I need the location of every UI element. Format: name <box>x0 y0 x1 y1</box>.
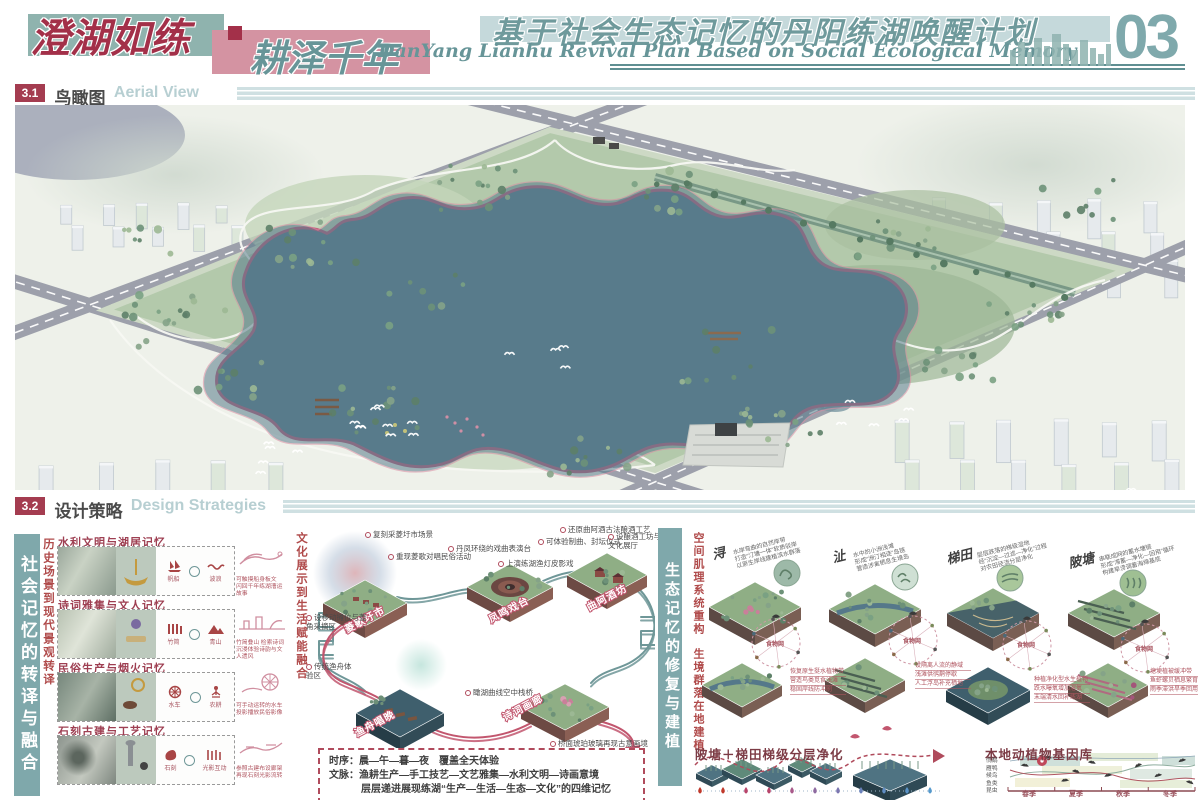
annotation: 复刻采菱圩市场景 <box>365 531 460 540</box>
memory-panel-folk: 水车 农耕 <box>57 672 235 722</box>
dragon-boat-sketch-icon <box>236 546 288 572</box>
purification-heading: 陂塘＋梯田梯级分层净化 <box>695 744 844 763</box>
left-sidebar-label: 社会记忆的转译与融合 <box>14 534 40 796</box>
season-label: 春季 <box>1022 789 1036 799</box>
section-strategy-bar: 3.2 设计策略 Design Strategies <box>15 497 1195 517</box>
design-poster: 澄湖如练 耕泽千年 基于社会生态记忆的丹阳练湖唤醒计划 DanYang Lian… <box>0 0 1200 800</box>
artifact-block <box>116 547 156 595</box>
section-strategy-title-en: Design Strategies <box>131 497 266 514</box>
panel-sketch-zone: 参照古建布设廊架再现石刻光影流转 <box>236 735 288 783</box>
strategy-notes: 设隔离人流的静域浅滩供鸻鹬停歇人工浮岛补充栖地 <box>915 662 971 689</box>
food-web-label: 食物网 <box>766 639 784 648</box>
panel-sketch-zone: 竹简叠山 检索诗词沉浸体验诗韵与文人遗风 <box>236 609 288 657</box>
season-label: 秋季 <box>1116 789 1130 799</box>
south-pavilion <box>715 423 737 436</box>
season-label: 夏季 <box>1069 789 1083 799</box>
link-circle-icon <box>184 755 195 766</box>
timeline-text: 晨—午—暮—夜 覆盖全天体验 <box>359 756 499 767</box>
page-number: 03 <box>1114 2 1177 73</box>
genebank-row-labels: 鸻鹬雁鸭 候鸟鱼类 昆虫 <box>986 758 998 796</box>
title-divider-square <box>228 26 242 40</box>
section-aerial-title-en: Aerial View <box>114 84 199 101</box>
artifact-block <box>116 610 156 658</box>
memory-panel-poetry: 竹简 青山 <box>57 609 235 659</box>
historic-photo <box>58 736 116 784</box>
historic-photo <box>58 673 116 721</box>
timeline-label: 时序： <box>329 756 359 767</box>
section-aerial-rule <box>237 87 1195 100</box>
section-aerial-number: 3.1 <box>15 84 45 102</box>
waterwheel-icon: 水车 <box>167 685 183 709</box>
food-web-label: 食物网 <box>1135 644 1153 653</box>
watercolor-circle-mint <box>395 639 447 691</box>
panel-sketch-zone: 可手动运转的水车投影播放民俗影像 <box>236 672 288 720</box>
section-strategy-title-cn: 设计策略 <box>54 502 122 521</box>
strategy-notes: 塘埂植被缓冲带鱼虾螺贝栖息繁育雨季滞洪旱季回用 <box>1150 668 1198 695</box>
context-text-2: 层层递进展现练湖“生产—生活—生态—文化”的四维记忆 <box>329 783 634 797</box>
header: 澄湖如练 耕泽千年 基于社会生态记忆的丹阳练湖唤醒计划 DanYang Lian… <box>0 0 1200 82</box>
genebank-heading: 本地动植物基因库 <box>985 744 1093 763</box>
header-rule-2 <box>610 68 1185 70</box>
stone-carving-icon: 石刻 <box>163 748 177 772</box>
section-strategy-number: 3.2 <box>15 497 45 515</box>
wave-icon: 波浪 <box>207 559 225 583</box>
poster-title-cn-2: 耕泽千年 <box>250 28 398 82</box>
poster-subtitle-en: DanYang Lianhu Revival Plan Based on Soc… <box>378 40 1076 62</box>
historic-photo <box>58 547 116 595</box>
link-circle-icon <box>189 629 200 640</box>
artifact-block <box>116 736 156 784</box>
annotation: 设移动摊位与菱角采摘区 <box>306 614 368 631</box>
annotation: 上演练湖渔灯皮影戏 <box>498 560 603 569</box>
annotation: 瞰湖曲线空中栈桥 <box>465 689 560 698</box>
historic-photo <box>58 610 116 658</box>
aerial-view-rendering <box>15 105 1185 490</box>
north-pavilion <box>593 137 605 144</box>
city-bridge-sketch-icon <box>236 609 288 635</box>
artifact-block <box>116 673 156 721</box>
strategy-notes: 种植净化型水生植物跌水曝氧增加溶氧末端清水回补练湖 <box>1034 676 1090 703</box>
light-show-icon: 光影互动 <box>202 748 226 772</box>
axis-history-label: 历史场景到现代景观转译 <box>40 538 56 788</box>
context-text: 渔耕生产—手工技艺—文艺雅集—水利文明—诗画意境 <box>359 770 599 781</box>
context-label: 文脉： <box>329 770 359 781</box>
eco-sidebar-label: 生态记忆的修复与建植 <box>658 528 682 786</box>
memory-panel-stone: 石刻 光影互动 <box>57 735 235 785</box>
aerial-view-canvas <box>15 105 1185 490</box>
link-circle-icon <box>190 692 201 703</box>
relic-sketch-icon <box>236 735 288 761</box>
bamboo-scroll-icon: 竹简 <box>166 622 182 646</box>
memory-panel-water: 帆船 波浪 <box>57 546 235 596</box>
city-skyline-icon <box>1008 32 1113 66</box>
strategy-notes: 恢复原生挺水植物带营造鸟类觅食浅滩稳固岸线防冲刷 <box>790 668 846 695</box>
food-web-label: 食物网 <box>1017 640 1035 649</box>
gold-boat-icon <box>124 577 148 586</box>
season-label: 冬季 <box>1163 789 1177 799</box>
link-circle-icon <box>189 566 200 577</box>
panel-sketch-zone: 可触摸船身板文闪回千年练湖漕运故事 <box>236 546 288 594</box>
poster-title-cn-1: 澄湖如练 <box>30 6 190 64</box>
food-web-label: 食物网 <box>903 636 921 645</box>
summary-box: 时序：晨—午—暮—夜 覆盖全天体验 文脉：渔耕生产—手工技艺—文艺雅集—水利文明… <box>318 748 645 800</box>
purification-graphic <box>695 726 945 800</box>
annotation: 传统渔舟体验区 <box>306 663 358 680</box>
mountain-icon: 青山 <box>207 622 225 646</box>
farming-icon: 农耕 <box>208 685 224 709</box>
sailboat-icon: 帆船 <box>166 559 182 583</box>
eco-isometric-blocks <box>702 582 1160 725</box>
section-strategy-rule <box>283 500 1195 513</box>
section-aerial-bar: 3.1 鸟瞰图 Aerial View <box>15 84 1195 104</box>
waterwheel-sketch-icon <box>236 672 288 698</box>
